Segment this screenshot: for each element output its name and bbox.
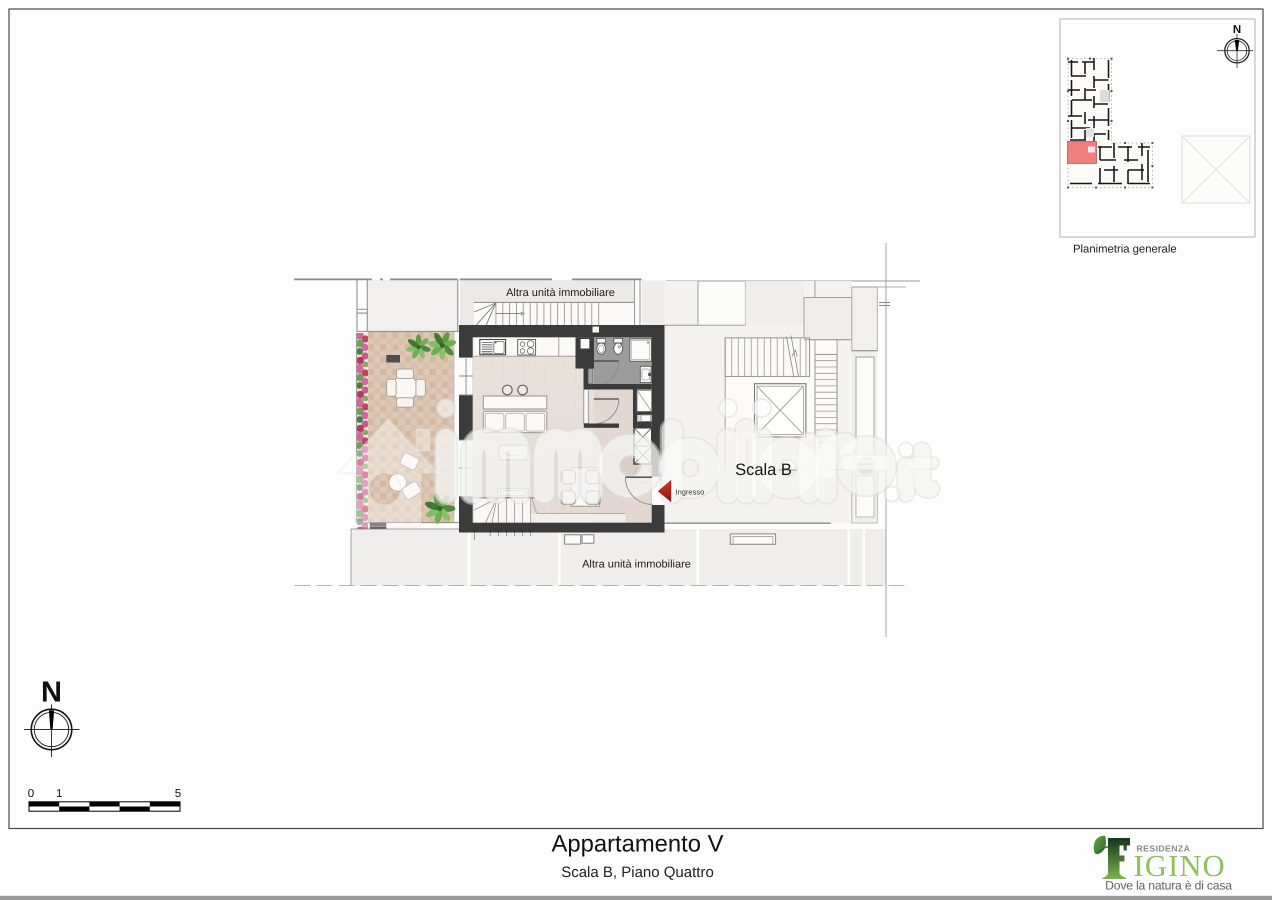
svg-text:Planimetria generale: Planimetria generale — [1073, 244, 1177, 256]
svg-text:Appartamento V: Appartamento V — [552, 831, 724, 858]
svg-text:5: 5 — [175, 788, 181, 800]
svg-text:Altra unità immobiliare: Altra unità immobiliare — [506, 287, 615, 299]
svg-text:Altra unità immobiliare: Altra unità immobiliare — [582, 559, 691, 571]
svg-text:Ingresso: Ingresso — [676, 488, 705, 497]
svg-text:Scala B, Piano Quattro: Scala B, Piano Quattro — [561, 864, 714, 881]
svg-text:0: 0 — [28, 788, 34, 800]
svg-text:N: N — [41, 677, 62, 709]
svg-text:1: 1 — [56, 788, 62, 800]
svg-text:Dove la natura è di casa: Dove la natura è di casa — [1105, 879, 1232, 893]
svg-text:Scala B: Scala B — [735, 461, 792, 479]
